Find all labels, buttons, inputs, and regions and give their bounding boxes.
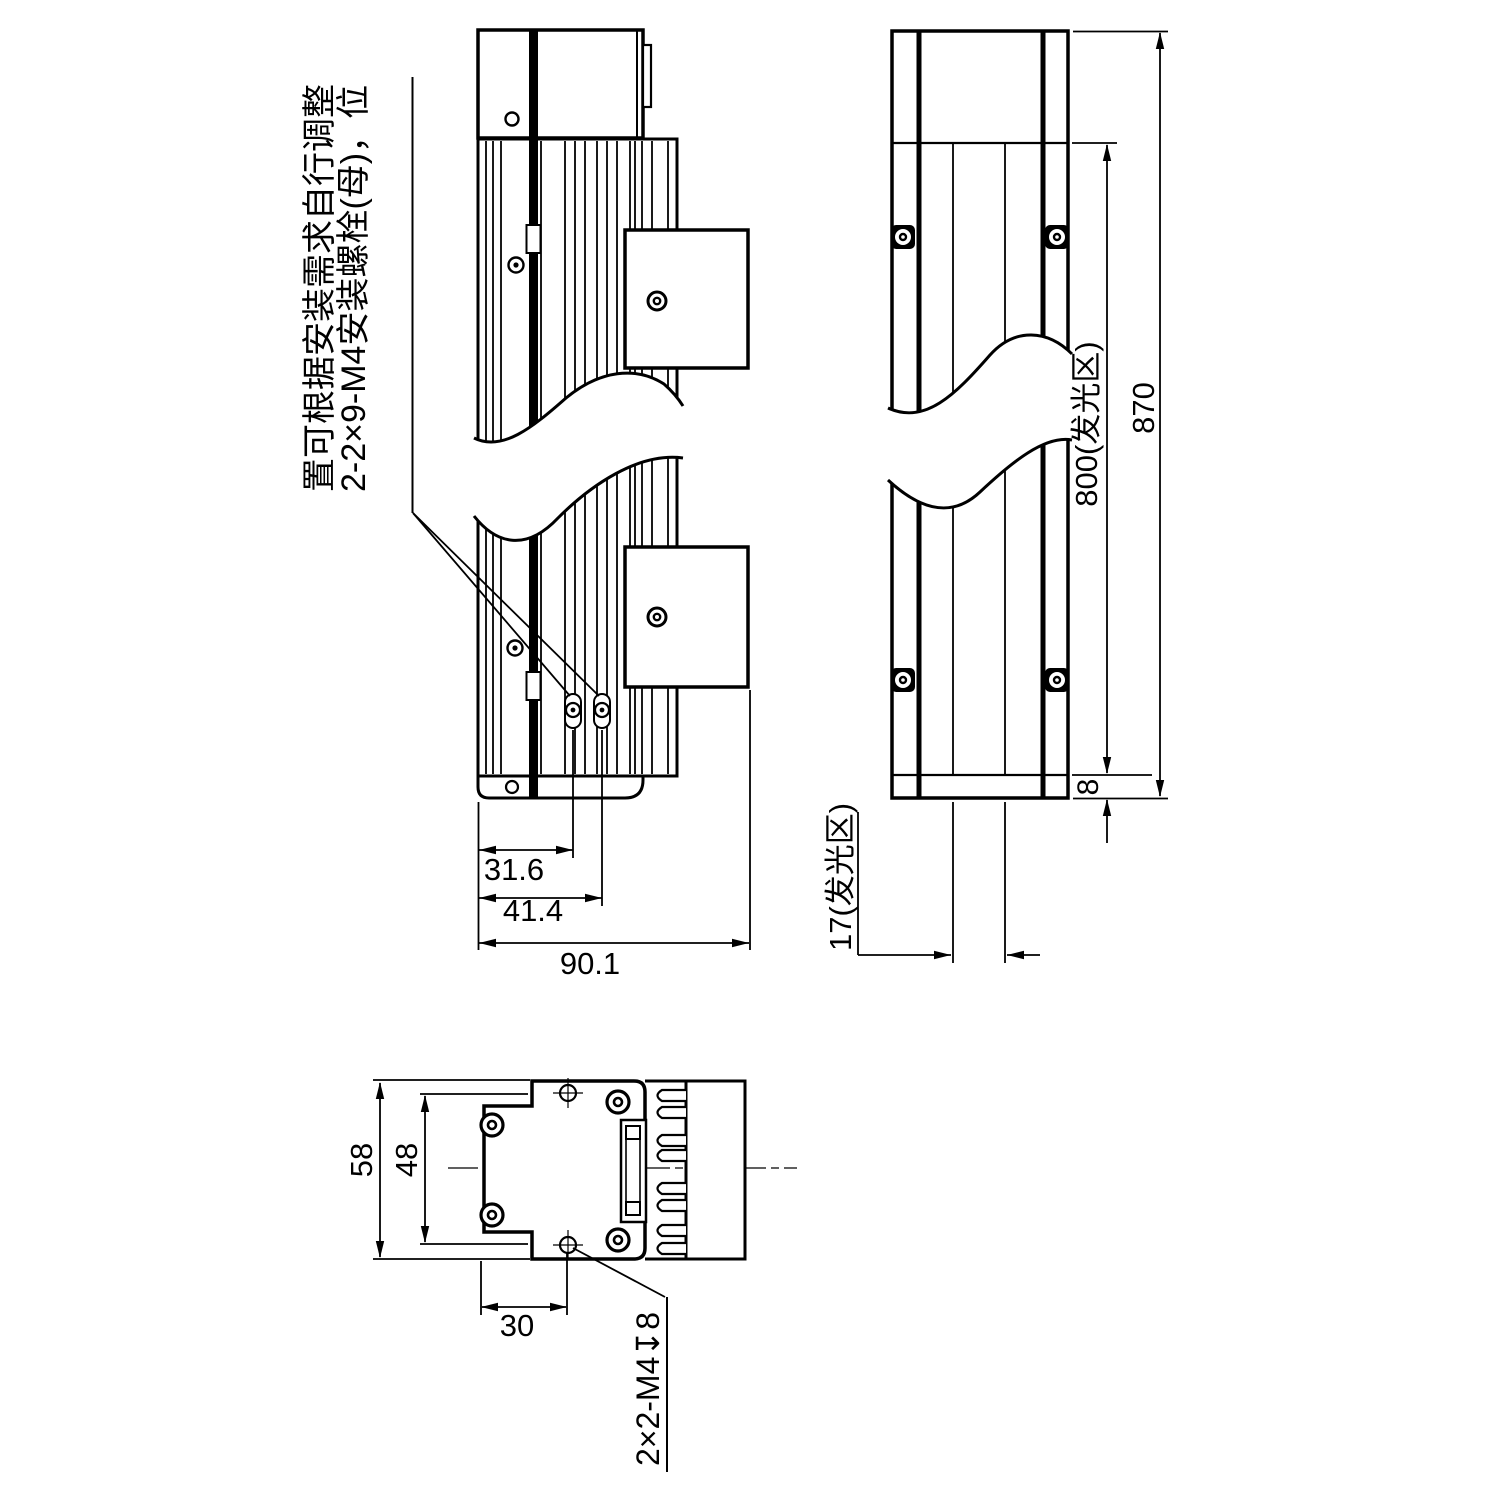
front-mount-bolt-2 [594,694,610,728]
dim-label-31-6: 31.6 [484,852,544,887]
front-slot-notch-top [527,225,541,253]
dim-label-58: 58 [344,1143,379,1177]
front-head-hole [506,113,519,126]
dim-label-48: 48 [389,1143,424,1177]
technical-drawing-sheet: 置可根据安装需求自行调整 2-2×9-M4安装螺栓(母)，位 31.6 41.4… [0,0,1500,1500]
dim-label-800-glow: 800(发光区) [1069,341,1104,506]
front-view [474,30,748,798]
front-bracket-bottom [625,547,748,687]
dim-label-90-1: 90.1 [560,946,620,981]
front-head-outline [478,30,643,138]
side-view [888,31,1072,798]
front-mount-bolt-1 [565,694,581,728]
front-head-tab [643,45,651,107]
end-view [448,1078,797,1260]
note-text-line-right: 2-2×9-M4安装螺栓(母)，位 [335,85,373,492]
drawing-svg: 置可根据安装需求自行调整 2-2×9-M4安装螺栓(母)，位 31.6 41.4… [0,0,1500,1500]
end-connector-block [686,1081,745,1259]
dim-label-17-glow: 17(发光区) [823,803,858,951]
note-text-line-left: 置可根据安装需求自行调整 [301,84,339,492]
dim-label-30: 30 [500,1308,534,1343]
front-panel-screw-top [509,258,524,273]
thread-callout-label: 2×2-M4↧8 [630,1312,666,1466]
end-connector-housing [621,1120,646,1222]
front-foot [478,776,643,798]
dim-label-41-4: 41.4 [503,893,563,928]
dim-label-870: 870 [1126,382,1161,434]
end-connector-pins [658,1090,687,1254]
front-panel-screw-bottom [508,641,523,656]
dim-label-8: 8 [1072,779,1105,796]
front-bracket-top [625,230,748,368]
front-center-rib [529,31,538,776]
front-slot-notch-bottom [527,672,541,700]
